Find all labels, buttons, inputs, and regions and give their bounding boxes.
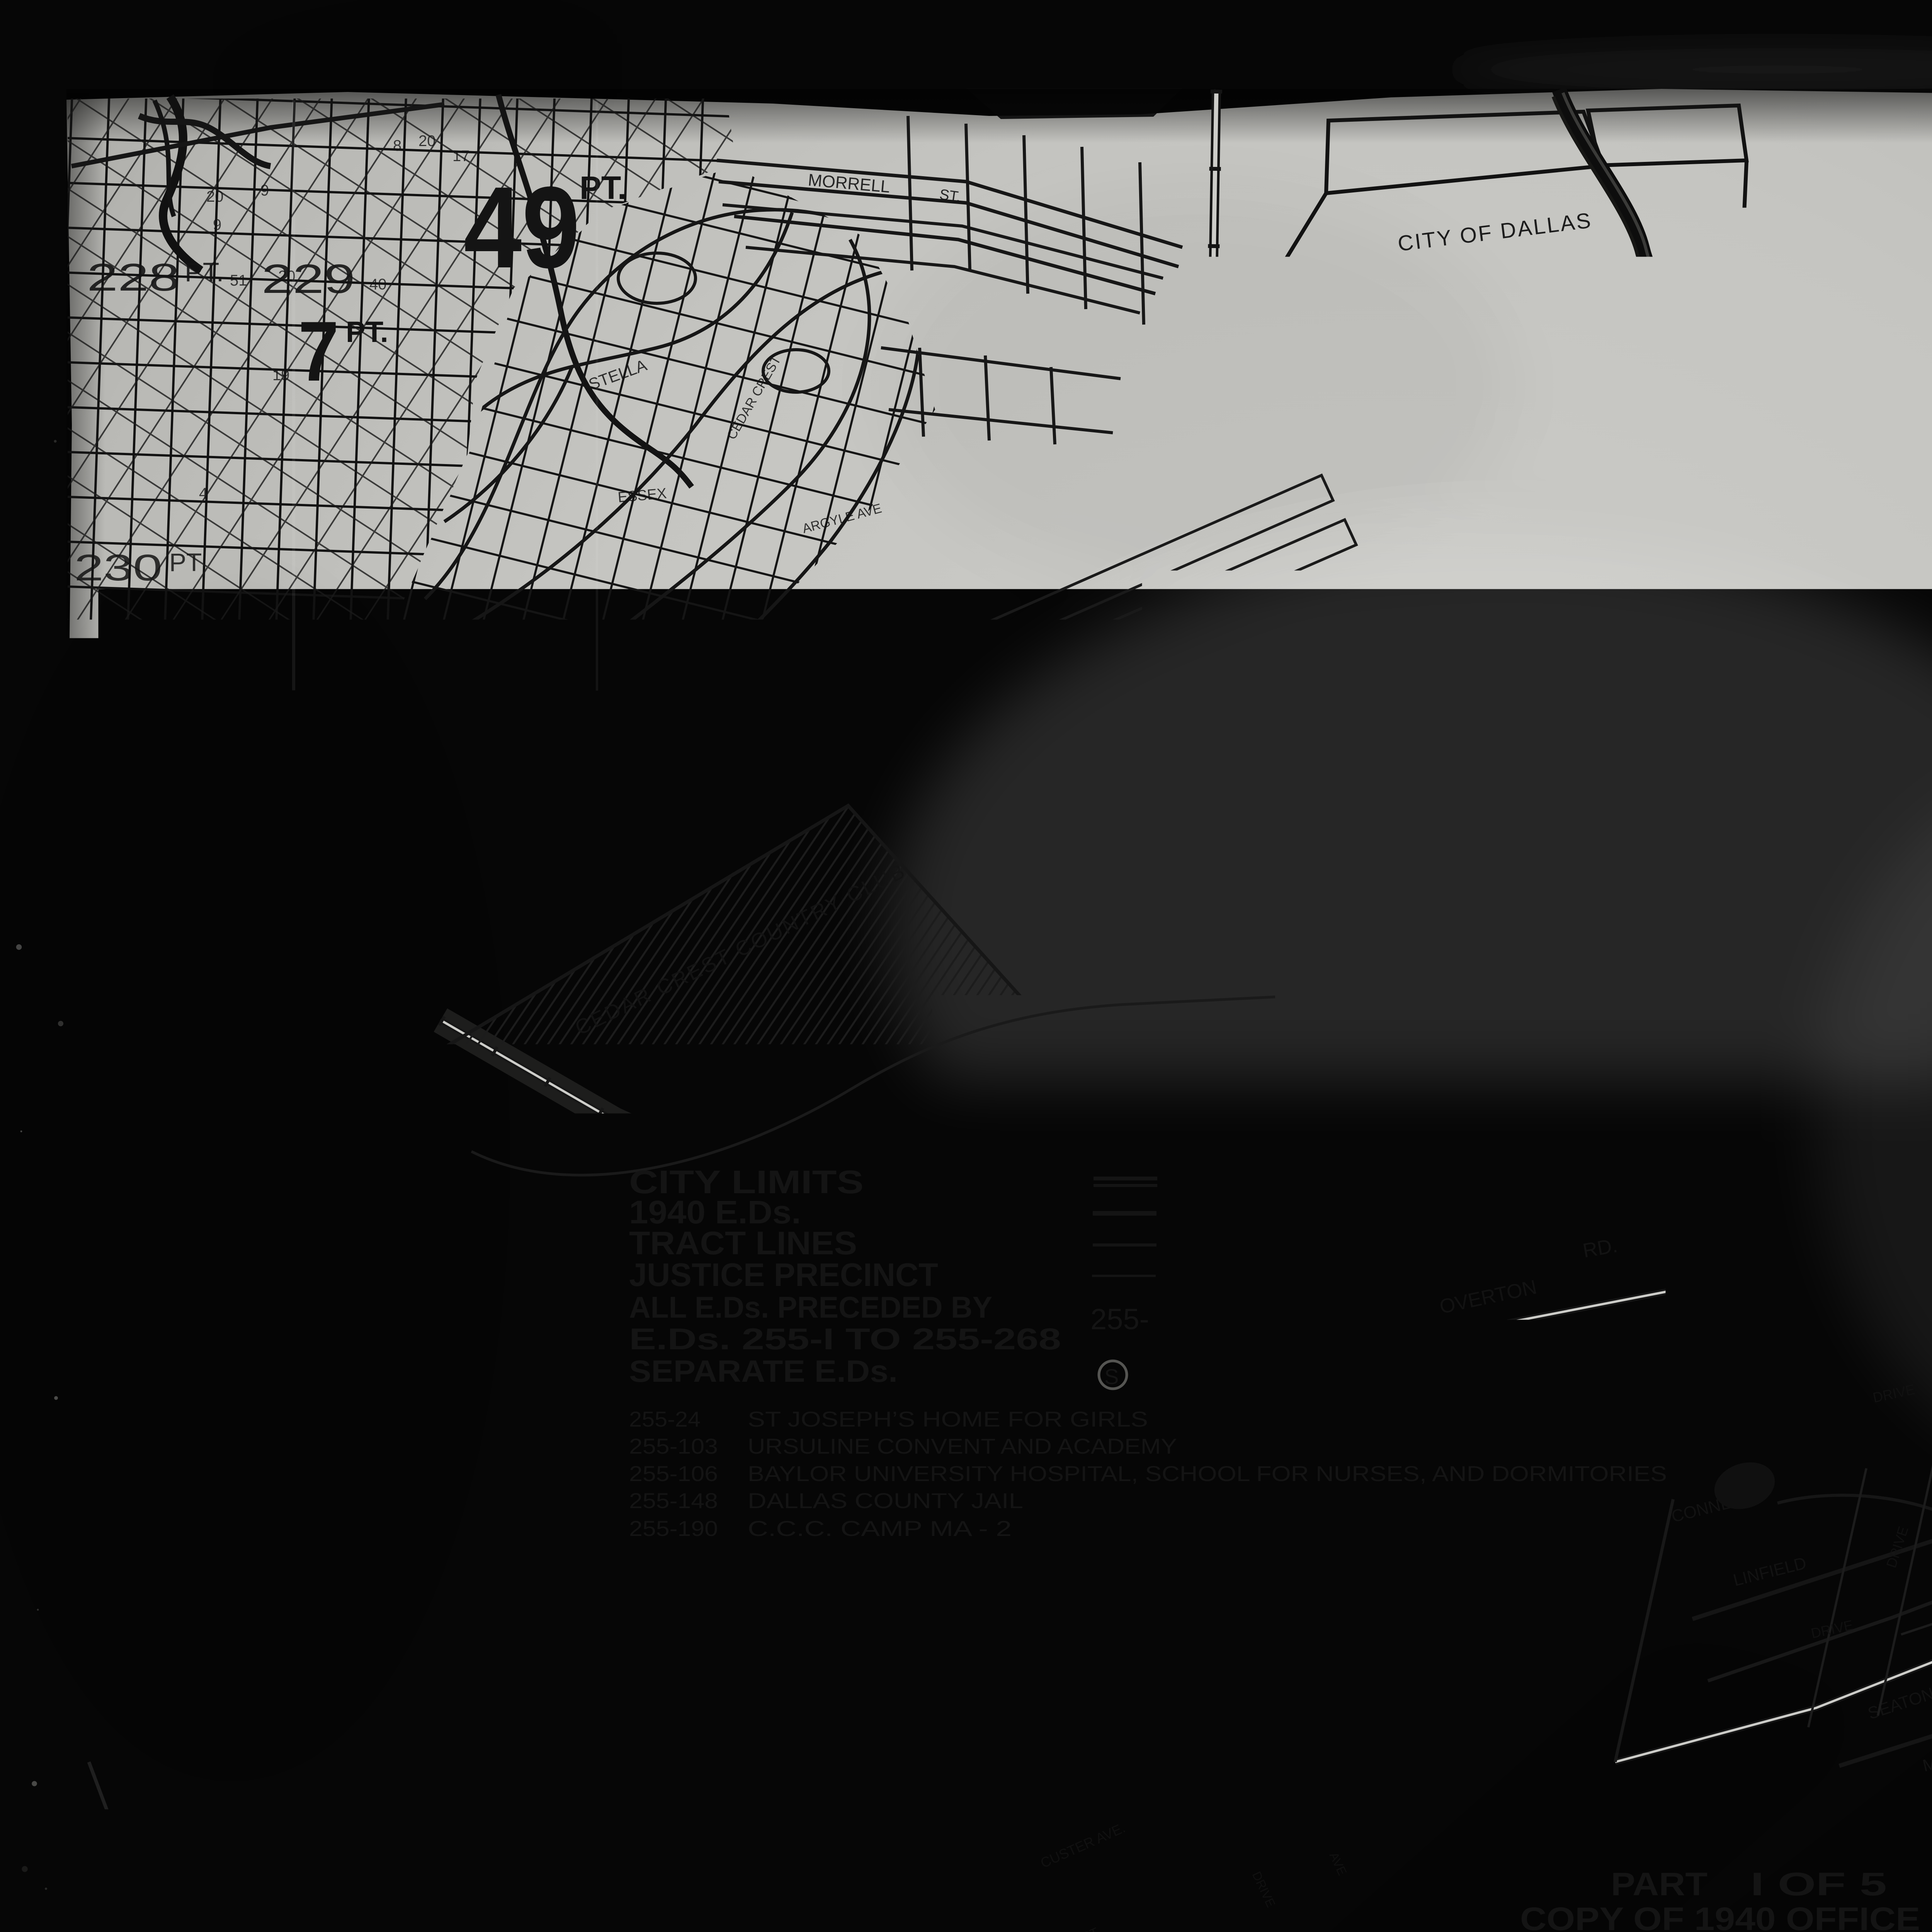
- svg-text:80: 80: [1059, 1928, 1080, 1932]
- svg-text:C.C.C. CAMP MA - 2: C.C.C. CAMP MA - 2: [748, 1516, 1012, 1541]
- svg-text:229: 229: [262, 256, 355, 302]
- svg-text:42: 42: [246, 976, 262, 992]
- svg-text:NORFOLK: NORFOLK: [502, 668, 566, 683]
- svg-text:I OF 5: I OF 5: [1750, 1866, 1887, 1902]
- svg-text:AVE: AVE: [1140, 1718, 1167, 1734]
- svg-text:255-103: 255-103: [629, 1434, 718, 1458]
- svg-text:74: 74: [318, 1093, 334, 1109]
- svg-text:PART: PART: [1611, 1866, 1708, 1902]
- svg-text:255: 255: [276, 985, 369, 1065]
- svg-text:255-: 255-: [1090, 1303, 1149, 1336]
- svg-text:TRACT LINES: TRACT LINES: [629, 1225, 857, 1261]
- svg-text:9: 9: [213, 216, 221, 233]
- svg-text:13: 13: [321, 726, 339, 743]
- svg-text:4: 4: [199, 485, 207, 502]
- svg-text:82: 82: [120, 951, 136, 967]
- svg-text:74: 74: [351, 949, 367, 966]
- svg-text:255-24: 255-24: [629, 1407, 701, 1431]
- svg-text:ST JOSEPH’S HOME FOR GIRLS: ST JOSEPH’S HOME FOR GIRLS: [748, 1407, 1148, 1431]
- svg-text:255-190: 255-190: [629, 1516, 718, 1541]
- svg-text:20: 20: [206, 188, 224, 205]
- svg-text:7: 7: [298, 304, 339, 399]
- svg-text:230: 230: [74, 547, 162, 588]
- svg-text:255-106: 255-106: [629, 1461, 718, 1486]
- svg-text:PT.: PT.: [346, 316, 388, 349]
- svg-text:51: 51: [230, 752, 248, 769]
- svg-text:ST.: ST.: [939, 186, 962, 205]
- svg-text:255-148: 255-148: [629, 1488, 718, 1513]
- svg-text:51: 51: [230, 272, 247, 289]
- svg-text:18: 18: [141, 1100, 157, 1117]
- svg-text:20: 20: [418, 133, 436, 150]
- svg-text:BAYLOR UNIVERSITY HOSPITAL,: BAYLOR UNIVERSITY HOSPITAL, SCHOOL FOR N…: [748, 1461, 1667, 1486]
- svg-text:39: 39: [324, 1162, 340, 1178]
- svg-text:82: 82: [125, 1145, 141, 1162]
- svg-text:8: 8: [393, 137, 401, 154]
- svg-text:PT: PT: [169, 548, 202, 577]
- svg-text:19: 19: [272, 367, 290, 384]
- svg-text:228: 228: [87, 256, 180, 299]
- svg-text:40: 40: [369, 276, 387, 293]
- svg-text:DALLAS COUNTY JAIL: DALLAS COUNTY JAIL: [748, 1488, 1023, 1513]
- svg-text:PT.: PT.: [580, 170, 626, 206]
- svg-text:E.Ds. 255-I TO 255-268: E.Ds. 255-I TO 255-268: [629, 1322, 1061, 1356]
- svg-text:55: 55: [298, 768, 419, 881]
- svg-text:ALL E.Ds. PRECEDED BY: ALL E.Ds. PRECEDED BY: [629, 1290, 992, 1324]
- svg-text:25: 25: [106, 876, 122, 892]
- svg-text:69: 69: [188, 1580, 204, 1596]
- svg-text:8: 8: [150, 791, 159, 808]
- svg-text:PT: PT: [415, 814, 458, 853]
- svg-text:URSULINE CONVENT AND ACADEMY: URSULINE CONVENT AND ACADEMY: [748, 1434, 1177, 1458]
- svg-text:9: 9: [260, 182, 269, 199]
- svg-text:PT.: PT.: [185, 257, 224, 287]
- svg-text:256: 256: [343, 1143, 444, 1202]
- svg-text:83: 83: [190, 891, 206, 907]
- svg-text:JUSTICE PRECINCT: JUSTICE PRECINCT: [629, 1257, 938, 1293]
- svg-text:COPY OF 1940 OFFICE MAP: COPY OF 1940 OFFICE MAP: [1520, 1901, 1932, 1932]
- svg-text:SEPARATE E.Ds.: SEPARATE E.Ds.: [629, 1354, 898, 1388]
- svg-text:260: 260: [287, 1525, 370, 1582]
- svg-text:57: 57: [157, 1386, 270, 1517]
